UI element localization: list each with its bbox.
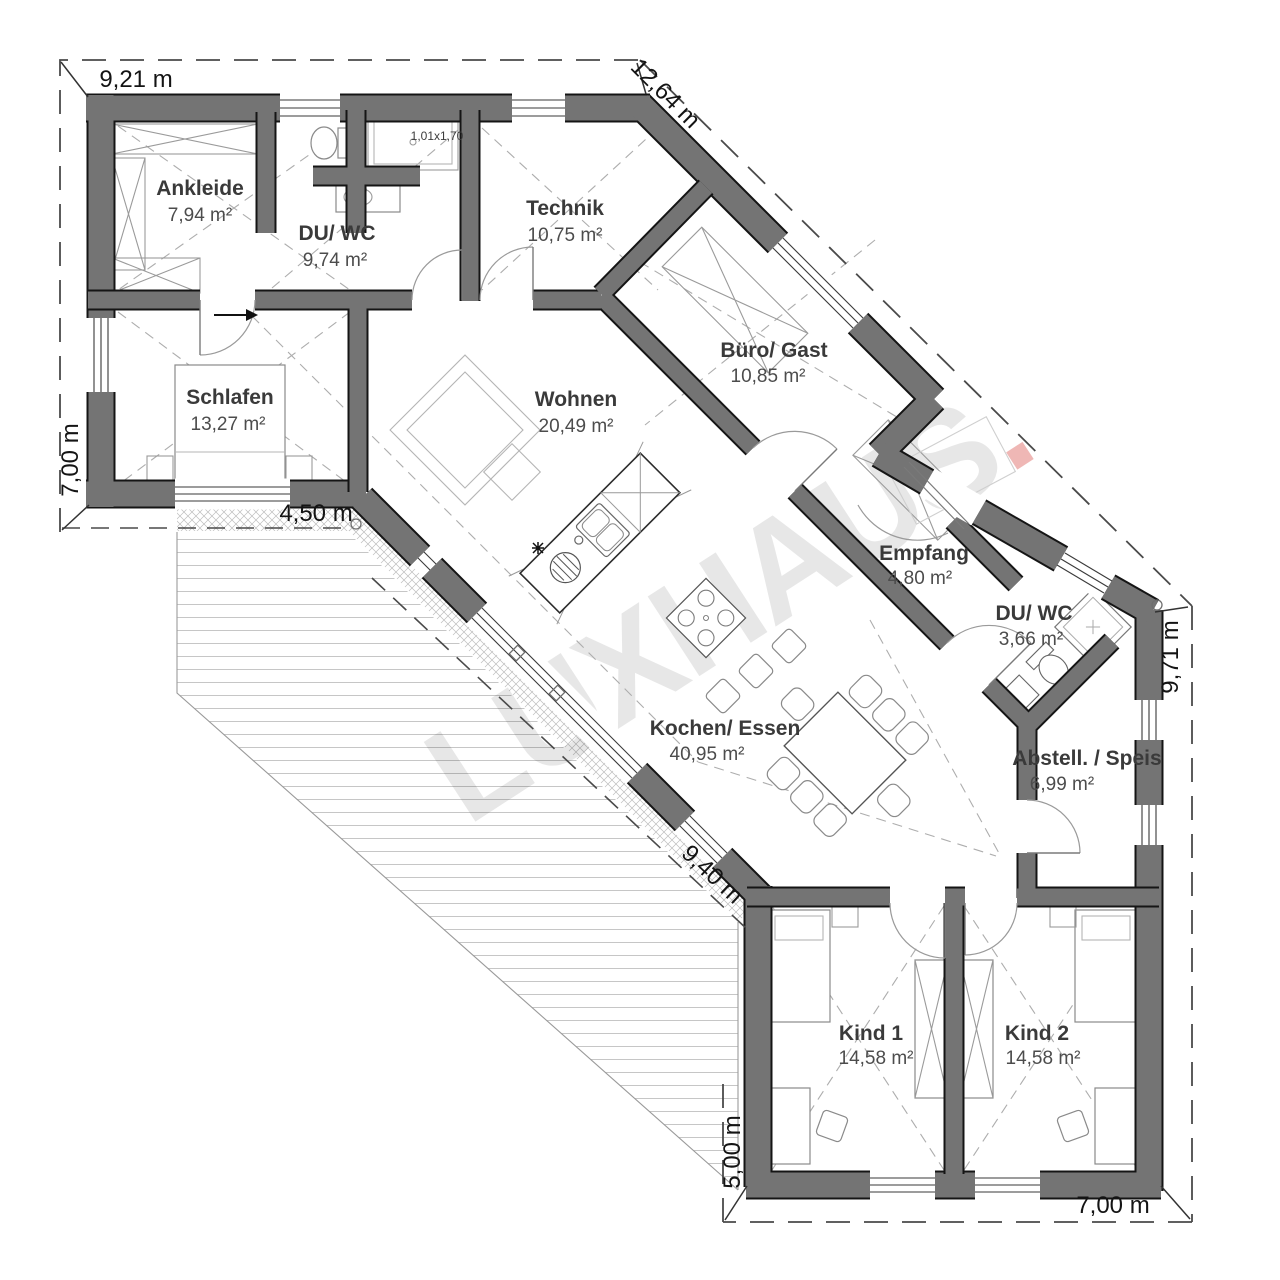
svg-text:14,58 m²: 14,58 m²	[839, 1048, 914, 1069]
toilet-icon	[311, 127, 337, 159]
bed	[768, 910, 830, 1022]
svg-text:Kind 1: Kind 1	[839, 1022, 903, 1045]
svg-text:6,99 m²: 6,99 m²	[1030, 774, 1094, 795]
floor-plan-drawing: LUXHAUS.	[0, 0, 1280, 1280]
svg-text:40,95 m²: 40,95 m²	[670, 744, 745, 765]
svg-text:10,85 m²: 10,85 m²	[731, 366, 806, 387]
svg-text:Technik: Technik	[526, 197, 604, 220]
svg-text:Wohnen: Wohnen	[535, 388, 617, 411]
dim-right: 9,71 m	[1157, 620, 1184, 693]
svg-text:Ankleide: Ankleide	[156, 177, 244, 200]
svg-text:DU/ WC: DU/ WC	[299, 222, 376, 245]
svg-text:10,75 m²: 10,75 m²	[528, 225, 603, 246]
floor-plan-page: LUXHAUS.	[0, 0, 1280, 1280]
bed	[1075, 910, 1137, 1022]
svg-text:4,80 m²: 4,80 m²	[888, 568, 952, 589]
svg-text:20,49 m²: 20,49 m²	[539, 416, 614, 437]
svg-text:3,66 m²: 3,66 m²	[999, 629, 1063, 650]
svg-text:Empfang: Empfang	[879, 542, 969, 565]
svg-text:Büro/ Gast: Büro/ Gast	[720, 339, 827, 362]
svg-text:DU/ WC: DU/ WC	[996, 602, 1073, 625]
svg-text:7,94 m²: 7,94 m²	[168, 205, 232, 226]
svg-text:Schlafen: Schlafen	[186, 386, 274, 409]
dim-left: 7,00 m	[57, 423, 84, 496]
shower-size-annotation: 1,01x1,70	[411, 129, 464, 143]
svg-text:13,27 m²: 13,27 m²	[191, 414, 266, 435]
svg-text:Kind 2: Kind 2	[1005, 1022, 1069, 1045]
svg-text:Kochen/ Essen: Kochen/ Essen	[650, 717, 801, 740]
dim-terrace-top: 4,50 m	[279, 500, 352, 527]
dim-bottom: 7,00 m	[1076, 1192, 1149, 1219]
dim-top: 9,21 m	[99, 66, 172, 93]
svg-text:9,74 m²: 9,74 m²	[303, 250, 367, 271]
desk	[768, 1088, 810, 1164]
desk	[1095, 1088, 1137, 1164]
dim-bottom-wing-left: 5,00 m	[719, 1115, 746, 1188]
svg-text:Abstell. / Speis: Abstell. / Speis	[1012, 747, 1161, 770]
svg-text:14,58 m²: 14,58 m²	[1006, 1048, 1081, 1069]
